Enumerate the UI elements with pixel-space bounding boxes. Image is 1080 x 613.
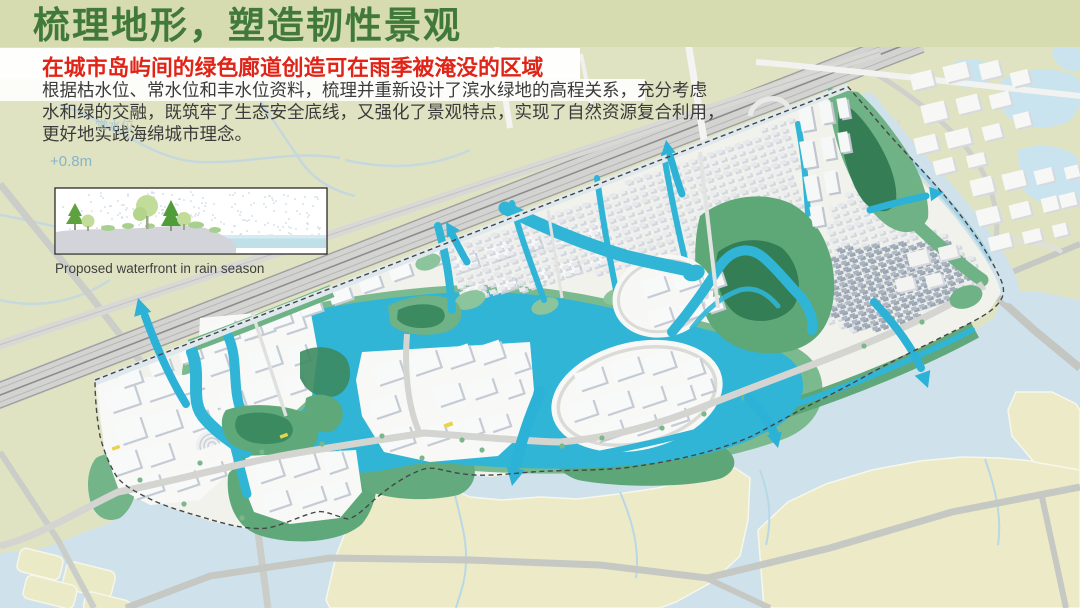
svg-text:水和绿的交融，既筑牢了生态安全底线，又强化了景观特点，实现了: 水和绿的交融，既筑牢了生态安全底线，又强化了景观特点，实现了自然资源复合利用， bbox=[42, 102, 725, 122]
svg-text:Proposed waterfront in rain se: Proposed waterfront in rain season bbox=[55, 261, 264, 276]
svg-text:根据枯水位、常水位和丰水位资料，梳理并重新设计了滨水绿地的高: 根据枯水位、常水位和丰水位资料，梳理并重新设计了滨水绿地的高程关系，充分考虑 bbox=[42, 80, 707, 100]
svg-text:梳理地形，塑造韧性景观: 梳理地形，塑造韧性景观 bbox=[33, 5, 462, 46]
svg-text:在城市岛屿间的绿色廊道创造可在雨季被淹没的区域: 在城市岛屿间的绿色廊道创造可在雨季被淹没的区域 bbox=[42, 55, 544, 80]
svg-text:常水位: 常水位 bbox=[95, 118, 134, 133]
svg-text:更好地实践海绵城市理念。: 更好地实践海绵城市理念。 bbox=[42, 124, 252, 144]
svg-text:+0.8m: +0.8m bbox=[50, 153, 92, 170]
